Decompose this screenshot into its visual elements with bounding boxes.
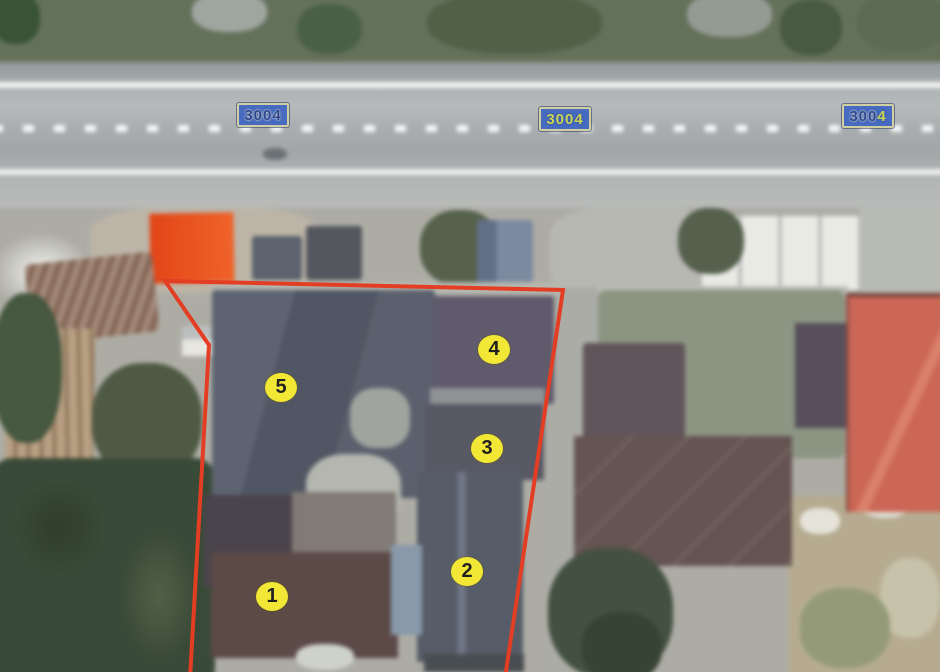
route-badge-3004[interactable]: 3004 — [842, 104, 894, 128]
aerial-map-view: 3004 3004 3004 1 2 3 4 5 — [0, 0, 940, 672]
marker-label: 2 — [461, 560, 472, 583]
marker-label: 5 — [275, 376, 286, 399]
building-marker-2[interactable]: 2 — [451, 557, 483, 586]
route-badge-label: 3004 — [244, 107, 281, 124]
building-marker-4[interactable]: 4 — [478, 335, 510, 364]
route-badge-label-part2: 4 — [877, 108, 886, 125]
route-badge-label: 3004 — [546, 111, 583, 128]
map-annotations: 3004 3004 3004 1 2 3 4 5 — [0, 0, 940, 672]
building-marker-1[interactable]: 1 — [256, 582, 288, 611]
route-badge-3004[interactable]: 3004 — [237, 103, 289, 127]
building-marker-5[interactable]: 5 — [265, 373, 297, 402]
marker-label: 3 — [481, 437, 492, 460]
building-marker-3[interactable]: 3 — [471, 434, 503, 463]
route-badge-3004[interactable]: 3004 — [539, 107, 591, 131]
route-badge-label-part1: 300 — [849, 108, 877, 125]
marker-label: 1 — [266, 585, 277, 608]
marker-label: 4 — [488, 338, 499, 361]
